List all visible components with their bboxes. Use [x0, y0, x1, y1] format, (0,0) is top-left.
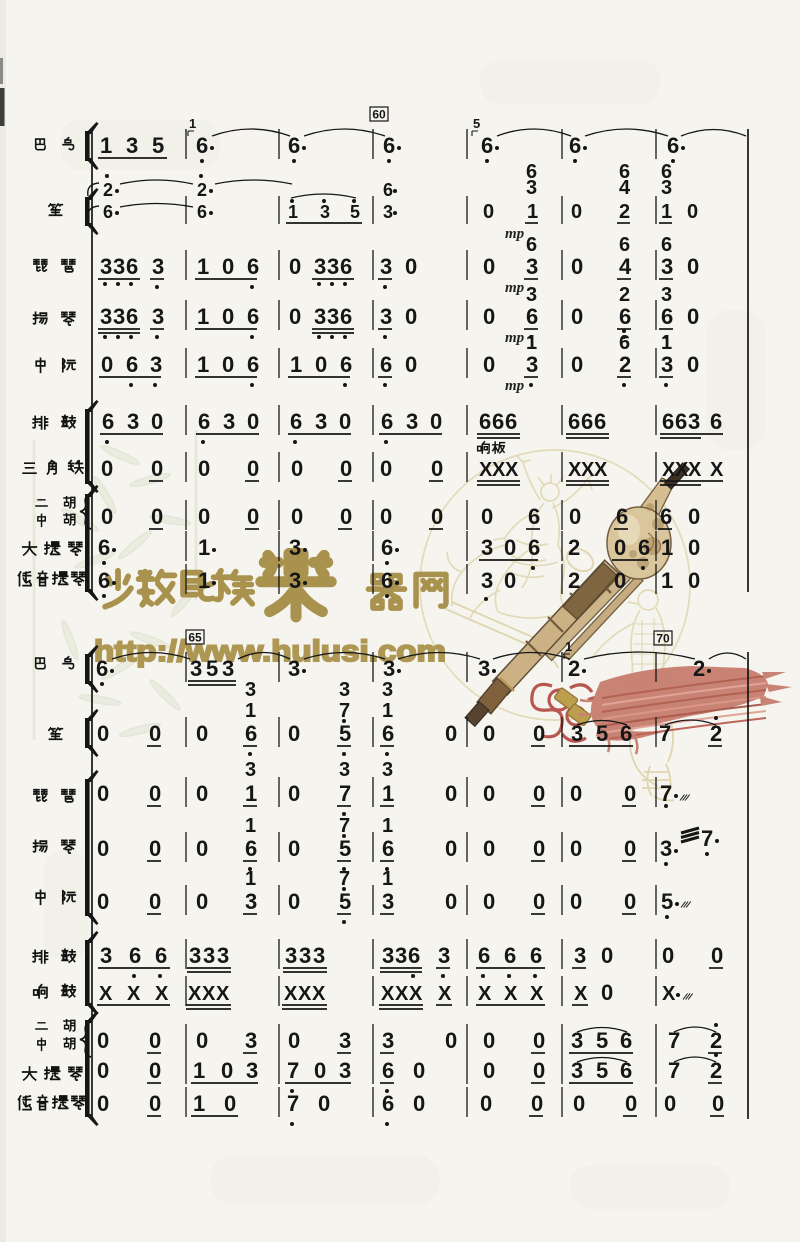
svg-text:2: 2 [568, 656, 580, 681]
svg-text:3: 3 [339, 1058, 351, 1083]
svg-text:3: 3 [660, 836, 672, 861]
svg-text:0: 0 [289, 304, 301, 329]
svg-text:0: 0 [573, 1091, 585, 1116]
svg-text:1: 1 [565, 639, 572, 654]
svg-text:6: 6 [638, 535, 650, 560]
svg-text:1: 1 [198, 535, 210, 560]
svg-text:3: 3 [222, 656, 234, 681]
svg-text:0: 0 [483, 352, 495, 377]
svg-text:0: 0 [431, 456, 443, 481]
svg-text:7: 7 [287, 1091, 299, 1116]
svg-text:6: 6 [662, 409, 674, 434]
svg-text:6: 6 [382, 1058, 394, 1083]
svg-text:1: 1 [193, 1091, 205, 1116]
svg-text:0: 0 [97, 1028, 109, 1053]
svg-text:3: 3 [320, 202, 330, 222]
svg-text:7: 7 [701, 826, 713, 851]
svg-text:1: 1 [245, 815, 256, 837]
svg-text:3: 3 [526, 254, 538, 279]
svg-text:0: 0 [445, 889, 457, 914]
svg-text:3: 3 [299, 943, 311, 968]
svg-text:3: 3 [246, 1058, 258, 1083]
svg-text:6: 6 [126, 304, 138, 329]
svg-text:X: X [438, 983, 452, 1005]
svg-text:0: 0 [480, 1091, 492, 1116]
svg-text:0: 0 [483, 254, 495, 279]
svg-text:1: 1 [197, 254, 209, 279]
svg-text:3: 3 [313, 943, 325, 968]
svg-text:5: 5 [206, 656, 218, 681]
svg-text:6: 6 [568, 409, 580, 434]
svg-text:X: X [155, 983, 169, 1005]
svg-text:5: 5 [339, 836, 351, 861]
svg-text:3: 3 [382, 1028, 394, 1053]
svg-text:0: 0 [687, 201, 698, 223]
svg-text:3: 3 [288, 656, 300, 681]
svg-text:1: 1 [661, 332, 672, 354]
svg-text:6: 6 [530, 943, 542, 968]
svg-text:1: 1 [661, 568, 673, 593]
svg-text:4: 4 [619, 177, 631, 199]
svg-text:1: 1 [245, 700, 256, 722]
svg-text:X: X [395, 983, 409, 1005]
svg-text:3: 3 [217, 943, 229, 968]
svg-text:0: 0 [483, 1058, 495, 1083]
svg-text:X: X [568, 459, 582, 481]
svg-text:3: 3 [339, 679, 350, 701]
svg-text:0: 0 [431, 504, 443, 529]
svg-text:3: 3 [661, 254, 673, 279]
svg-text:6: 6 [619, 234, 630, 256]
svg-text:X: X [675, 459, 689, 481]
svg-text:3: 3 [315, 409, 327, 434]
svg-text:0: 0 [445, 721, 457, 746]
svg-text:1: 1 [189, 116, 196, 131]
svg-text:0: 0 [504, 535, 516, 560]
svg-text:0: 0 [380, 456, 392, 481]
svg-text:60: 60 [372, 108, 386, 122]
svg-text:X: X [409, 983, 423, 1005]
svg-text:X: X [662, 459, 676, 481]
svg-text:0: 0 [569, 504, 581, 529]
svg-text:0: 0 [445, 781, 457, 806]
svg-text:X: X [688, 459, 702, 481]
svg-text:7: 7 [339, 868, 350, 890]
svg-text:3: 3 [127, 409, 139, 434]
svg-text:1: 1 [245, 868, 256, 890]
svg-text:1: 1 [661, 535, 673, 560]
svg-text:2: 2 [710, 721, 722, 746]
svg-text:6: 6 [594, 409, 606, 434]
svg-text:1: 1 [527, 201, 538, 223]
svg-text:6: 6 [667, 133, 679, 158]
svg-text:1: 1 [197, 352, 209, 377]
svg-text:3: 3 [526, 352, 538, 377]
svg-text:5: 5 [152, 133, 164, 158]
svg-text:7: 7 [660, 781, 672, 806]
svg-text:6: 6 [382, 836, 394, 861]
svg-text:0: 0 [625, 1091, 637, 1116]
svg-text:6: 6 [569, 133, 581, 158]
svg-text:7: 7 [339, 815, 350, 837]
svg-text:3: 3 [113, 254, 125, 279]
svg-text:6: 6 [247, 352, 259, 377]
svg-text:6: 6 [380, 352, 392, 377]
svg-text:0: 0 [624, 836, 636, 861]
svg-text:6: 6 [526, 234, 537, 256]
svg-text:0: 0 [314, 1058, 326, 1083]
svg-text:0: 0 [97, 1058, 109, 1083]
svg-text:X: X [710, 459, 724, 481]
svg-text:3: 3 [189, 943, 201, 968]
svg-text:3: 3 [661, 352, 673, 377]
svg-text:3: 3 [100, 254, 112, 279]
svg-text:6: 6 [198, 409, 210, 434]
svg-text:6: 6 [126, 352, 138, 377]
svg-text:mp: mp [505, 378, 525, 394]
svg-text:0: 0 [224, 1091, 236, 1116]
svg-text:0: 0 [405, 352, 417, 377]
svg-text:0: 0 [198, 456, 210, 481]
svg-text:6: 6 [660, 504, 672, 529]
svg-text:X: X [505, 459, 519, 481]
svg-text:0: 0 [247, 504, 259, 529]
svg-text:5: 5 [596, 721, 608, 746]
svg-text:3: 3 [661, 177, 672, 199]
svg-text:0: 0 [570, 836, 582, 861]
svg-text:6: 6 [479, 409, 491, 434]
svg-text:X: X [188, 983, 202, 1005]
svg-text:2: 2 [568, 568, 580, 593]
svg-text:6: 6 [504, 943, 516, 968]
svg-text:1: 1 [526, 332, 537, 354]
svg-text:6: 6 [129, 943, 141, 968]
svg-text:0: 0 [315, 352, 327, 377]
svg-text:mp: mp [505, 330, 525, 346]
svg-text:3: 3 [481, 568, 493, 593]
svg-text:X: X [312, 983, 326, 1005]
svg-text:6: 6 [340, 254, 352, 279]
svg-text:6: 6 [492, 409, 504, 434]
svg-text:6: 6 [581, 409, 593, 434]
svg-text:0: 0 [712, 1091, 724, 1116]
svg-text:0: 0 [97, 721, 109, 746]
svg-text:3: 3 [245, 889, 257, 914]
svg-text:0: 0 [288, 836, 300, 861]
svg-text:0: 0 [289, 254, 301, 279]
svg-text:3: 3 [152, 254, 164, 279]
svg-text:3: 3 [481, 535, 493, 560]
svg-text:0: 0 [222, 304, 234, 329]
svg-text:6: 6 [382, 721, 394, 746]
svg-text:6: 6 [126, 254, 138, 279]
svg-text:3: 3 [383, 656, 395, 681]
svg-text:X: X [662, 983, 676, 1005]
svg-text:0: 0 [533, 889, 545, 914]
svg-text:6: 6 [383, 180, 393, 200]
svg-text:7: 7 [339, 700, 350, 722]
svg-text:7: 7 [287, 1058, 299, 1083]
svg-text:1: 1 [193, 1058, 205, 1083]
svg-text:3: 3 [526, 177, 537, 199]
svg-text:X: X [381, 983, 395, 1005]
svg-text:6: 6 [528, 535, 540, 560]
svg-text:3: 3 [382, 889, 394, 914]
svg-text:0: 0 [664, 1091, 676, 1116]
svg-text:5: 5 [596, 1028, 608, 1053]
svg-text:0: 0 [340, 456, 352, 481]
svg-text:0: 0 [571, 304, 583, 329]
svg-text:2: 2 [710, 1058, 722, 1083]
svg-text:6: 6 [381, 568, 393, 593]
svg-text:6: 6 [98, 535, 110, 560]
svg-text:0: 0 [405, 304, 417, 329]
svg-text:0: 0 [288, 781, 300, 806]
svg-text:3: 3 [406, 409, 418, 434]
svg-text:6: 6 [675, 409, 687, 434]
svg-text:7: 7 [339, 781, 351, 806]
svg-text:0: 0 [149, 889, 161, 914]
svg-text:3: 3 [380, 254, 392, 279]
svg-text:0: 0 [318, 1091, 330, 1116]
svg-text:6: 6 [340, 352, 352, 377]
svg-text:6: 6 [661, 234, 672, 256]
svg-text:0: 0 [247, 409, 259, 434]
svg-text:0: 0 [149, 1058, 161, 1083]
svg-text:0: 0 [149, 836, 161, 861]
svg-text:6: 6 [616, 504, 628, 529]
svg-text:6: 6 [383, 133, 395, 158]
svg-text:mp: mp [505, 280, 525, 296]
svg-text:0: 0 [483, 304, 495, 329]
svg-text:1: 1 [382, 700, 393, 722]
svg-text:0: 0 [504, 568, 516, 593]
svg-text:0: 0 [196, 836, 208, 861]
svg-text:3: 3 [661, 284, 672, 306]
svg-text:X: X [127, 983, 141, 1005]
svg-text:0: 0 [196, 781, 208, 806]
svg-text:0: 0 [405, 254, 417, 279]
svg-text:70: 70 [656, 632, 670, 646]
svg-text:3: 3 [339, 1028, 351, 1053]
svg-text:0: 0 [222, 254, 234, 279]
svg-text:6: 6 [408, 943, 420, 968]
svg-text:0: 0 [571, 254, 583, 279]
svg-text:1: 1 [382, 781, 394, 806]
svg-text:0: 0 [97, 781, 109, 806]
svg-text:3: 3 [289, 535, 301, 560]
svg-text:2: 2 [710, 1028, 722, 1053]
svg-text:3: 3 [438, 943, 450, 968]
svg-text:5: 5 [350, 202, 360, 222]
svg-text:3: 3 [327, 254, 339, 279]
svg-text:0: 0 [97, 836, 109, 861]
svg-text:6: 6 [288, 133, 300, 158]
svg-text:3: 3 [223, 409, 235, 434]
svg-text:6: 6 [382, 1091, 394, 1116]
svg-text:0: 0 [570, 889, 582, 914]
svg-text:3: 3 [478, 656, 490, 681]
svg-text:0: 0 [196, 1028, 208, 1053]
svg-text:0: 0 [688, 535, 700, 560]
svg-text:0: 0 [688, 504, 700, 529]
svg-text:2: 2 [619, 284, 630, 306]
svg-text:2: 2 [568, 535, 580, 560]
svg-text:5: 5 [473, 116, 480, 131]
svg-text:X: X [216, 983, 230, 1005]
svg-text:6: 6 [481, 133, 493, 158]
svg-text:65: 65 [188, 631, 202, 645]
svg-text:0: 0 [533, 1058, 545, 1083]
svg-text:0: 0 [571, 352, 583, 377]
svg-text:3: 3 [126, 133, 138, 158]
svg-text:1: 1 [100, 133, 112, 158]
svg-text:6: 6 [505, 409, 517, 434]
svg-text:X: X [284, 983, 298, 1005]
svg-text:3: 3 [382, 679, 393, 701]
svg-text:X: X [530, 983, 544, 1005]
svg-text:0: 0 [221, 1058, 233, 1083]
svg-text:3: 3 [245, 679, 256, 701]
svg-text:6: 6 [381, 535, 393, 560]
svg-text:3: 3 [100, 943, 112, 968]
svg-text:X: X [594, 459, 608, 481]
svg-text:6: 6 [619, 304, 631, 329]
svg-text:0: 0 [149, 1091, 161, 1116]
svg-text:6: 6 [197, 202, 207, 222]
svg-text:5: 5 [339, 721, 351, 746]
svg-text:X: X [99, 983, 113, 1005]
svg-text:0: 0 [149, 721, 161, 746]
svg-text:0: 0 [198, 504, 210, 529]
svg-text:3: 3 [285, 943, 297, 968]
svg-text:3: 3 [688, 409, 700, 434]
svg-text:0: 0 [288, 1028, 300, 1053]
svg-text:5: 5 [596, 1058, 608, 1083]
svg-text:0: 0 [413, 1058, 425, 1083]
svg-text:3: 3 [382, 943, 394, 968]
svg-text:0: 0 [339, 409, 351, 434]
svg-text:0: 0 [687, 352, 699, 377]
svg-text:6: 6 [526, 304, 538, 329]
svg-text:0: 0 [601, 980, 613, 1005]
svg-text:2: 2 [619, 201, 630, 223]
svg-text:0: 0 [291, 504, 303, 529]
svg-text:0: 0 [483, 1028, 495, 1053]
svg-text:X: X [581, 459, 595, 481]
svg-text:X: X [479, 459, 493, 481]
svg-text:0: 0 [445, 1028, 457, 1053]
svg-text:0: 0 [533, 781, 545, 806]
svg-text:0: 0 [481, 504, 493, 529]
svg-text:3: 3 [150, 352, 162, 377]
svg-text:6: 6 [247, 254, 259, 279]
svg-text:3: 3 [339, 759, 350, 781]
svg-text:3: 3 [203, 943, 215, 968]
svg-text:3: 3 [289, 568, 301, 593]
svg-text:0: 0 [101, 456, 113, 481]
svg-text:0: 0 [149, 781, 161, 806]
svg-text:0: 0 [483, 201, 494, 223]
svg-text:0: 0 [196, 889, 208, 914]
svg-text:3: 3 [245, 1028, 257, 1053]
svg-text:2: 2 [693, 656, 705, 681]
svg-text:0: 0 [614, 535, 626, 560]
svg-text:0: 0 [291, 456, 303, 481]
svg-text:3: 3 [113, 304, 125, 329]
svg-text:3: 3 [395, 943, 407, 968]
svg-text:2: 2 [619, 352, 631, 377]
svg-text:1: 1 [382, 868, 393, 890]
svg-text:X: X [492, 459, 506, 481]
svg-text:3: 3 [382, 759, 393, 781]
svg-text:0: 0 [288, 721, 300, 746]
svg-text:1: 1 [661, 201, 672, 223]
svg-text:0: 0 [413, 1091, 425, 1116]
svg-text:0: 0 [196, 721, 208, 746]
svg-text:6: 6 [340, 304, 352, 329]
svg-text:6: 6 [196, 133, 208, 158]
svg-text:1: 1 [290, 352, 302, 377]
svg-text:3: 3 [152, 304, 164, 329]
svg-text:0: 0 [101, 504, 113, 529]
svg-text:6: 6 [619, 332, 630, 354]
svg-text:0: 0 [571, 201, 582, 223]
svg-text:4: 4 [619, 254, 632, 279]
svg-text:2: 2 [103, 180, 113, 200]
svg-text:X: X [574, 983, 588, 1005]
svg-text:0: 0 [149, 1028, 161, 1053]
svg-text:0: 0 [483, 889, 495, 914]
svg-text:0: 0 [247, 456, 259, 481]
svg-text:3: 3 [526, 284, 537, 306]
svg-text:3: 3 [574, 943, 586, 968]
svg-text:6: 6 [102, 409, 114, 434]
svg-text:1: 1 [197, 304, 209, 329]
svg-text:1: 1 [245, 781, 257, 806]
svg-text:0: 0 [533, 836, 545, 861]
svg-text:6: 6 [247, 304, 259, 329]
svg-text:X: X [504, 983, 518, 1005]
svg-text:0: 0 [380, 504, 392, 529]
svg-text:6: 6 [661, 304, 673, 329]
svg-text:5: 5 [661, 889, 673, 914]
svg-text:0: 0 [687, 254, 699, 279]
svg-text:3: 3 [383, 202, 393, 222]
svg-text:0: 0 [711, 943, 723, 968]
svg-text:0: 0 [288, 889, 300, 914]
svg-text:mp: mp [505, 226, 525, 242]
svg-text:0: 0 [601, 943, 613, 968]
svg-text:6: 6 [710, 409, 722, 434]
svg-text:0: 0 [101, 352, 113, 377]
svg-text:0: 0 [688, 568, 700, 593]
svg-text:6: 6 [528, 504, 540, 529]
svg-text:6: 6 [155, 943, 167, 968]
svg-text:1: 1 [288, 202, 298, 222]
svg-text:5: 5 [339, 889, 351, 914]
svg-text:6: 6 [478, 943, 490, 968]
svg-text:0: 0 [151, 504, 163, 529]
svg-text:X: X [478, 983, 492, 1005]
svg-text:0: 0 [340, 504, 352, 529]
svg-text:6: 6 [381, 409, 393, 434]
svg-text:1: 1 [198, 568, 210, 593]
svg-text:0: 0 [533, 721, 545, 746]
svg-text:2: 2 [197, 180, 207, 200]
svg-text:6: 6 [245, 721, 257, 746]
svg-text:3: 3 [190, 656, 202, 681]
